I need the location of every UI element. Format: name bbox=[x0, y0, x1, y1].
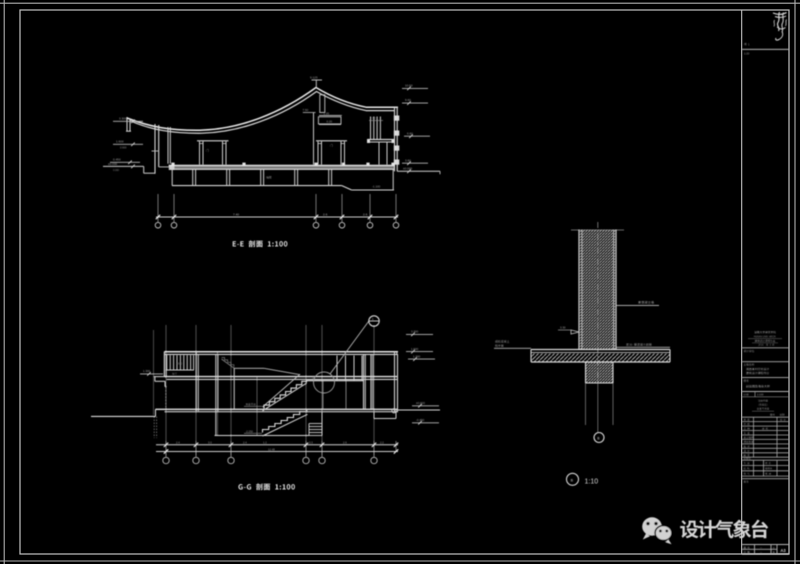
svg-text:0.450: 0.450 bbox=[113, 158, 121, 162]
svg-text:3.30: 3.30 bbox=[560, 326, 566, 330]
svg-text:3.300: 3.300 bbox=[119, 117, 127, 121]
svg-text:1:10: 1:10 bbox=[585, 478, 599, 485]
svg-text:3.3: 3.3 bbox=[309, 441, 313, 445]
svg-text:10.60: 10.60 bbox=[405, 84, 413, 88]
svg-text:1:100: 1:100 bbox=[757, 393, 764, 397]
svg-text:±0.000: ±0.000 bbox=[108, 162, 117, 166]
svg-text:2.4: 2.4 bbox=[176, 441, 180, 445]
svg-text:2.4: 2.4 bbox=[243, 441, 247, 445]
svg-text:3.0: 3.0 bbox=[208, 441, 212, 445]
svg-text:7.40: 7.40 bbox=[233, 213, 239, 217]
svg-text:1.300: 1.300 bbox=[143, 369, 150, 373]
svg-text:HUNAN UNIV. ARCH.: HUNAN UNIV. ARCH. bbox=[754, 335, 777, 338]
svg-text:A3: A3 bbox=[780, 548, 786, 553]
svg-text:7.50: 7.50 bbox=[303, 108, 309, 112]
svg-text:0.900: 0.900 bbox=[120, 146, 127, 150]
svg-text:1:20: 1:20 bbox=[744, 52, 750, 56]
svg-text:1.600: 1.600 bbox=[116, 140, 124, 144]
svg-text:-0.450: -0.450 bbox=[416, 418, 425, 422]
svg-text:2.2: 2.2 bbox=[380, 441, 384, 445]
svg-text:2.60: 2.60 bbox=[370, 116, 376, 120]
svg-text:-1.100: -1.100 bbox=[372, 185, 381, 189]
svg-text:1.600: 1.600 bbox=[176, 362, 183, 365]
svg-text:2.6: 2.6 bbox=[323, 213, 328, 217]
svg-text:1.05: 1.05 bbox=[324, 111, 330, 115]
svg-text:±0.000: ±0.000 bbox=[416, 401, 425, 405]
svg-text:0.000: 0.000 bbox=[113, 169, 120, 172]
svg-text:1.2: 1.2 bbox=[263, 441, 267, 445]
svg-text:0.20: 0.20 bbox=[327, 119, 333, 123]
svg-text:12.48: 12.48 bbox=[268, 447, 275, 451]
svg-text:2.6: 2.6 bbox=[363, 213, 368, 217]
svg-text:2.6: 2.6 bbox=[343, 441, 347, 445]
svg-text:9.125: 9.125 bbox=[310, 76, 318, 80]
svg-text:-2.250: -2.250 bbox=[246, 429, 254, 433]
